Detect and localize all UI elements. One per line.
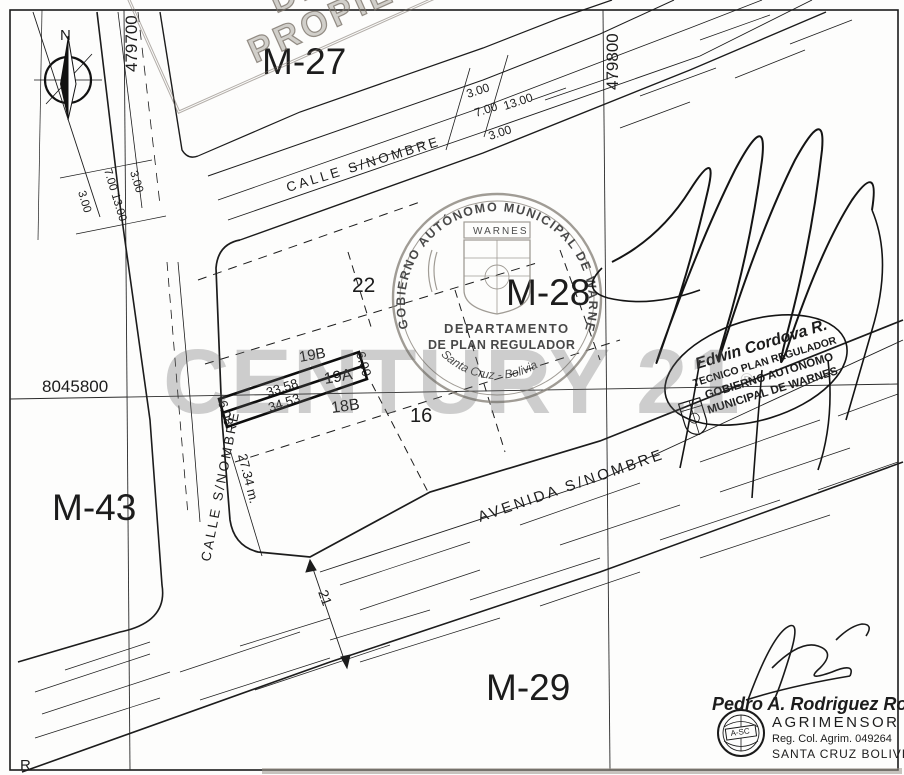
stamp-shield-banner: WARNES — [473, 226, 529, 237]
top-street-name: CALLE S/NOMBRE — [284, 134, 442, 195]
dim-corner: 27.34 m. — [235, 452, 262, 505]
lot-22: 22 — [352, 274, 375, 297]
svg-text:7.00 13.00: 7.00 13.00 — [101, 167, 128, 222]
century21-watermark: CENTURY 21® — [163, 330, 754, 435]
surveyor-title: AGRIMENSOR — [772, 714, 900, 731]
cadastral-plan-scan: 479700 479800 8045800 N — [0, 0, 904, 775]
surveyor-registration: Reg. Col. Agrim. 049264 — [772, 733, 892, 745]
avenue-width-arrow — [306, 560, 350, 668]
left-street-section-labels: 3.00 7.00 13.00 3.00 — [75, 167, 145, 222]
surveyor-signature — [746, 624, 869, 700]
avenue-name: AVENIDA S/NOMBRE — [476, 446, 667, 526]
corner-letter: R — [20, 757, 31, 774]
surveyor-logo: A-SC — [718, 710, 764, 756]
svg-text:3.00: 3.00 — [127, 169, 145, 194]
surveyor-location: SANTA CRUZ BOLIVIA — [772, 747, 904, 761]
block-m43: M-43 — [52, 487, 136, 528]
compass-rose: N — [34, 27, 102, 120]
grid-label-8045800: 8045800 — [42, 377, 108, 396]
svg-text:3.00: 3.00 — [487, 122, 514, 143]
scan-artifact — [262, 768, 902, 774]
svg-text:3.00: 3.00 — [75, 189, 93, 214]
watermark-text: CENTURY 21 — [163, 331, 741, 433]
stamp-flourish — [429, 250, 438, 292]
grid-label-479800: 479800 — [603, 33, 622, 90]
watermark-reg-symbol: ® — [741, 370, 755, 389]
svg-text:7.00: 7.00 — [473, 99, 500, 120]
svg-text:13.00: 13.00 — [502, 90, 535, 113]
avenue-lane-hatching — [35, 394, 898, 738]
top-street-section-labels: 3.00 7.00 13.00 3.00 — [465, 80, 535, 143]
regulator-signature — [592, 129, 882, 498]
svg-text:3.00: 3.00 — [465, 80, 492, 101]
surveyor-name: Pedro A. Rodriguez Rojas — [712, 694, 904, 714]
block-m29: M-29 — [486, 667, 570, 708]
